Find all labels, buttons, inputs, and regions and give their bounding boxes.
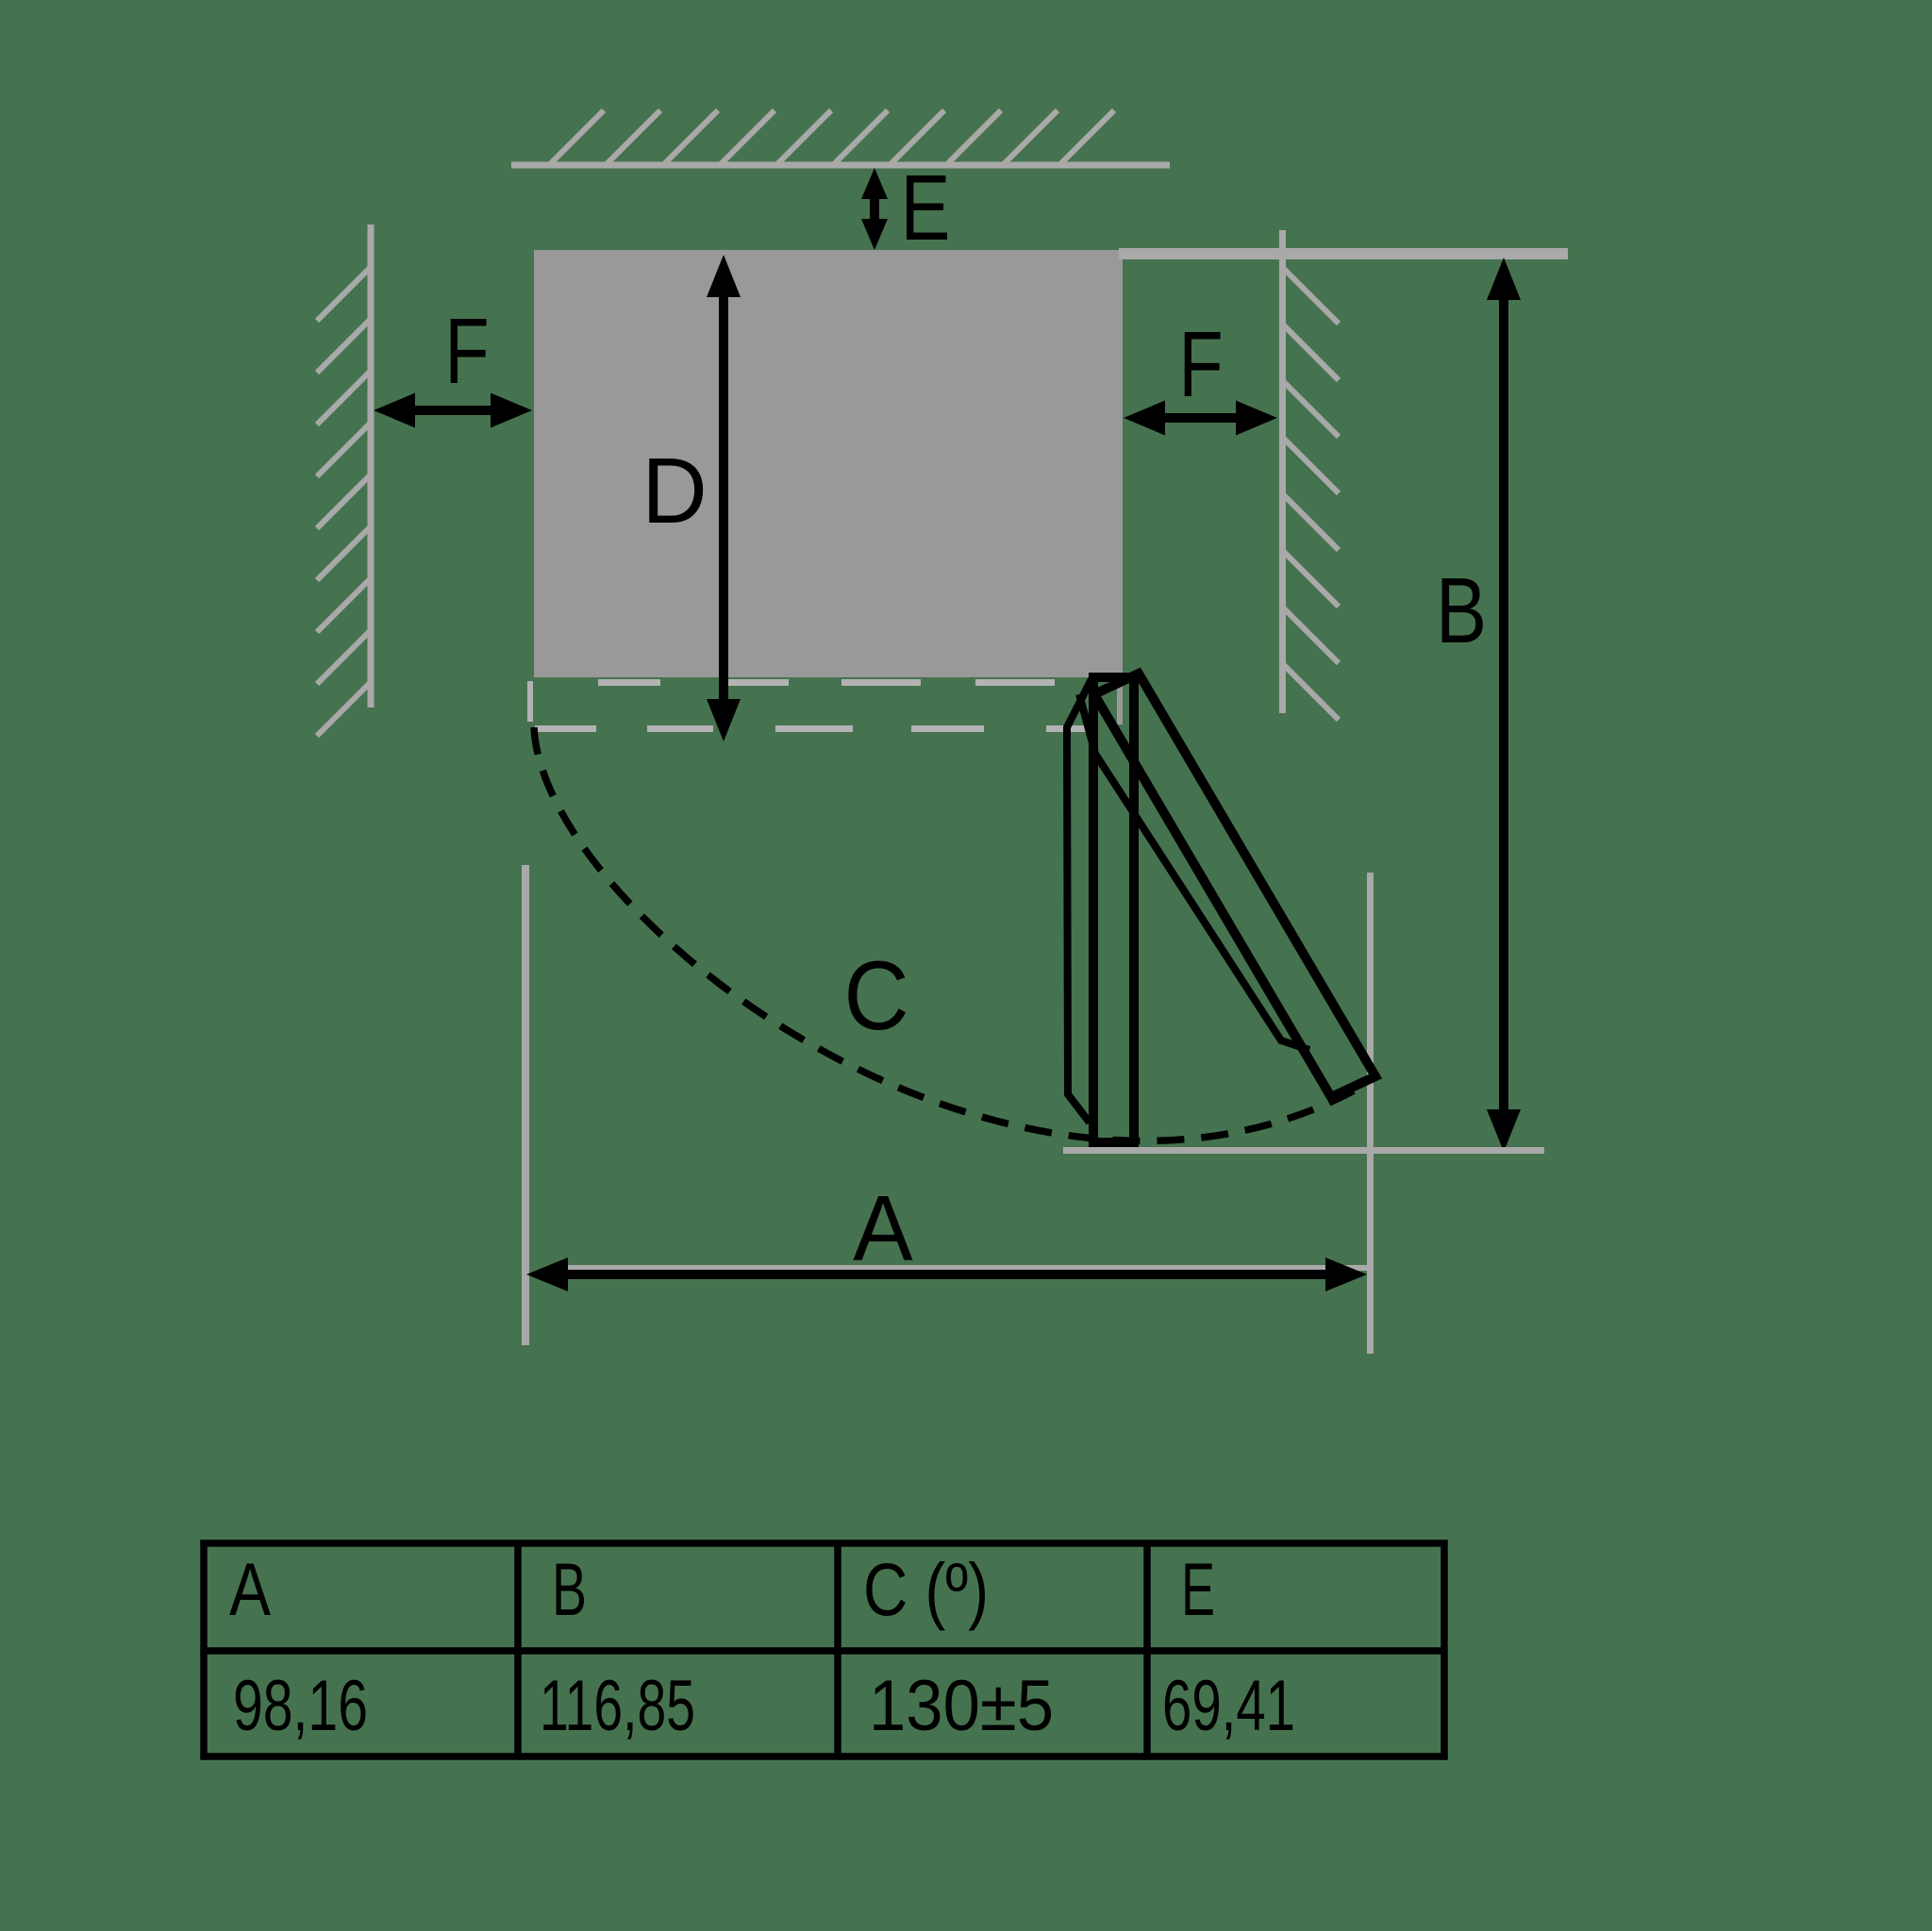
svg-text:98,16: 98,16 (233, 1666, 368, 1746)
svg-text:E: E (901, 156, 951, 259)
svg-text:116,85: 116,85 (540, 1666, 695, 1746)
svg-text:A: A (853, 1178, 913, 1281)
svg-text:130±5: 130±5 (869, 1666, 1054, 1746)
svg-text:D: D (641, 439, 707, 542)
svg-text:F: F (1178, 312, 1223, 416)
svg-text:C (º): C (º) (863, 1547, 989, 1631)
svg-text:C: C (843, 941, 908, 1051)
svg-text:E: E (1181, 1547, 1215, 1631)
svg-text:B: B (552, 1547, 587, 1631)
svg-text:A: A (229, 1547, 271, 1631)
svg-text:B: B (1436, 559, 1487, 663)
svg-text:69,41: 69,41 (1162, 1666, 1295, 1746)
svg-text:F: F (444, 299, 489, 403)
